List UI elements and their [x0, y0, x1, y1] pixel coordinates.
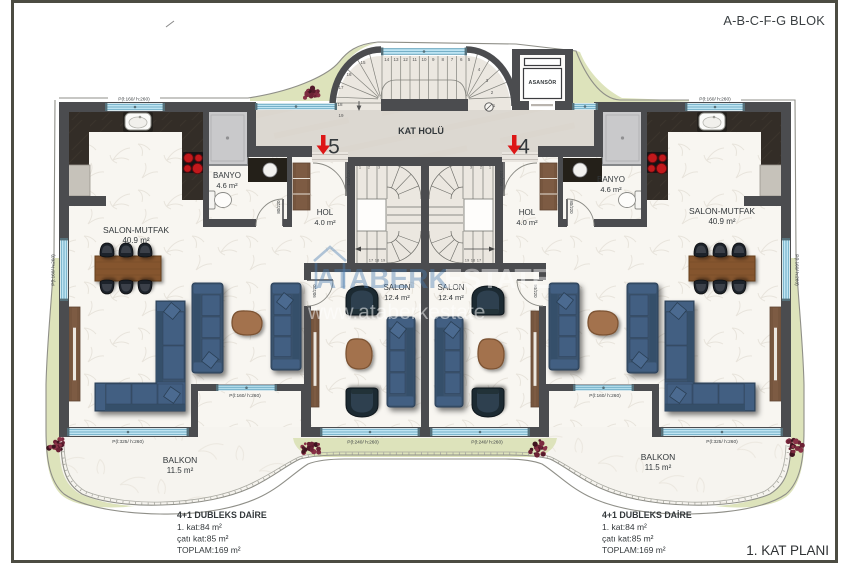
svg-text:100/220: 100/220	[346, 170, 351, 186]
svg-text:10: 10	[421, 57, 427, 62]
svg-text:P(l:160/ h:260): P(l:160/ h:260)	[699, 97, 731, 103]
svg-text:P(l:160/ h:260): P(l:160/ h:260)	[51, 254, 57, 286]
svg-text:19: 19	[465, 258, 470, 263]
svg-text:ESTATE: ESTATE	[444, 263, 550, 294]
svg-text:TOPLAM:169 m²: TOPLAM:169 m²	[177, 545, 241, 555]
svg-text:4: 4	[518, 136, 530, 159]
svg-text:17: 17	[369, 258, 374, 263]
svg-text:18: 18	[375, 258, 380, 263]
svg-text:SALON-MUTFAK: SALON-MUTFAK	[689, 206, 755, 216]
svg-text:HOL: HOL	[519, 208, 536, 217]
svg-text:ATABERK: ATABERK	[316, 263, 449, 294]
svg-text:P(l:160/ h:260): P(l:160/ h:260)	[589, 393, 621, 399]
svg-text:P(l:160/ h:260): P(l:160/ h:260)	[118, 97, 150, 103]
svg-text:4.0 m²: 4.0 m²	[314, 218, 336, 227]
svg-text:11.5 m²: 11.5 m²	[645, 463, 672, 472]
svg-text:17: 17	[477, 258, 482, 263]
svg-text:4+1 DUBLEKS DAİRE: 4+1 DUBLEKS DAİRE	[602, 510, 692, 520]
svg-text:11.5 m²: 11.5 m²	[167, 466, 194, 475]
svg-text:HOL: HOL	[317, 208, 334, 217]
svg-text:TOPLAM:169 m²: TOPLAM:169 m²	[602, 545, 666, 555]
svg-text:P(l:160/ h:260): P(l:160/ h:260)	[229, 393, 261, 399]
svg-text:18: 18	[337, 102, 343, 107]
svg-text:A-B-C-F-G BLOK: A-B-C-F-G BLOK	[723, 13, 825, 28]
svg-text:P(l:325/ h:260): P(l:325/ h:260)	[112, 439, 144, 445]
svg-text:19: 19	[381, 258, 386, 263]
svg-text:www.ataberkestate: www.ataberkestate	[307, 301, 485, 324]
svg-text:19: 19	[338, 113, 344, 118]
svg-text:15: 15	[360, 60, 366, 65]
svg-text:4.6 m²: 4.6 m²	[600, 185, 622, 194]
svg-text:13: 13	[393, 57, 399, 62]
svg-text:ASANSÖR: ASANSÖR	[529, 79, 557, 86]
svg-text:1. kat:84 m²: 1. kat:84 m²	[602, 522, 647, 532]
svg-text:çatı kat:85 m²: çatı kat:85 m²	[602, 534, 654, 544]
svg-text:P(l:240/ h:260): P(l:240/ h:260)	[471, 439, 503, 445]
svg-text:16: 16	[346, 72, 352, 77]
svg-text:100/220: 100/220	[499, 170, 504, 186]
svg-text:çatı kat:85 m²: çatı kat:85 m²	[177, 534, 229, 544]
svg-text:4.0 m²: 4.0 m²	[516, 218, 538, 227]
svg-text:P(l:240/ h:260): P(l:240/ h:260)	[347, 439, 379, 445]
svg-text:KAT HOLÜ: KAT HOLÜ	[398, 126, 444, 136]
svg-text:4+1 DUBLEKS DAİRE: 4+1 DUBLEKS DAİRE	[177, 510, 267, 520]
svg-text:40.9 m²: 40.9 m²	[122, 236, 149, 245]
svg-text:P(l:325/ h:260): P(l:325/ h:260)	[706, 439, 738, 445]
svg-text:SALON-MUTFAK: SALON-MUTFAK	[103, 225, 169, 235]
svg-text:BALKON: BALKON	[641, 452, 676, 462]
svg-text:1. KAT PLANI: 1. KAT PLANI	[746, 543, 829, 558]
svg-text:BANYO: BANYO	[597, 175, 625, 184]
svg-text:4.6 m²: 4.6 m²	[216, 181, 238, 190]
svg-text:80/220: 80/220	[276, 200, 281, 214]
svg-text:80/220: 80/220	[569, 200, 574, 214]
svg-text:12: 12	[403, 57, 409, 62]
svg-text:P(l:160/ h:260): P(l:160/ h:260)	[794, 254, 800, 286]
svg-text:18: 18	[471, 258, 476, 263]
svg-text:5: 5	[328, 136, 340, 159]
svg-text:11: 11	[412, 57, 417, 62]
svg-text:40.9 m²: 40.9 m²	[708, 217, 735, 226]
svg-text:BANYO: BANYO	[213, 171, 241, 180]
svg-text:BALKON: BALKON	[163, 455, 198, 465]
svg-text:1. kat:84 m²: 1. kat:84 m²	[177, 522, 222, 532]
svg-text:14: 14	[384, 57, 390, 62]
svg-text:17: 17	[338, 85, 344, 90]
